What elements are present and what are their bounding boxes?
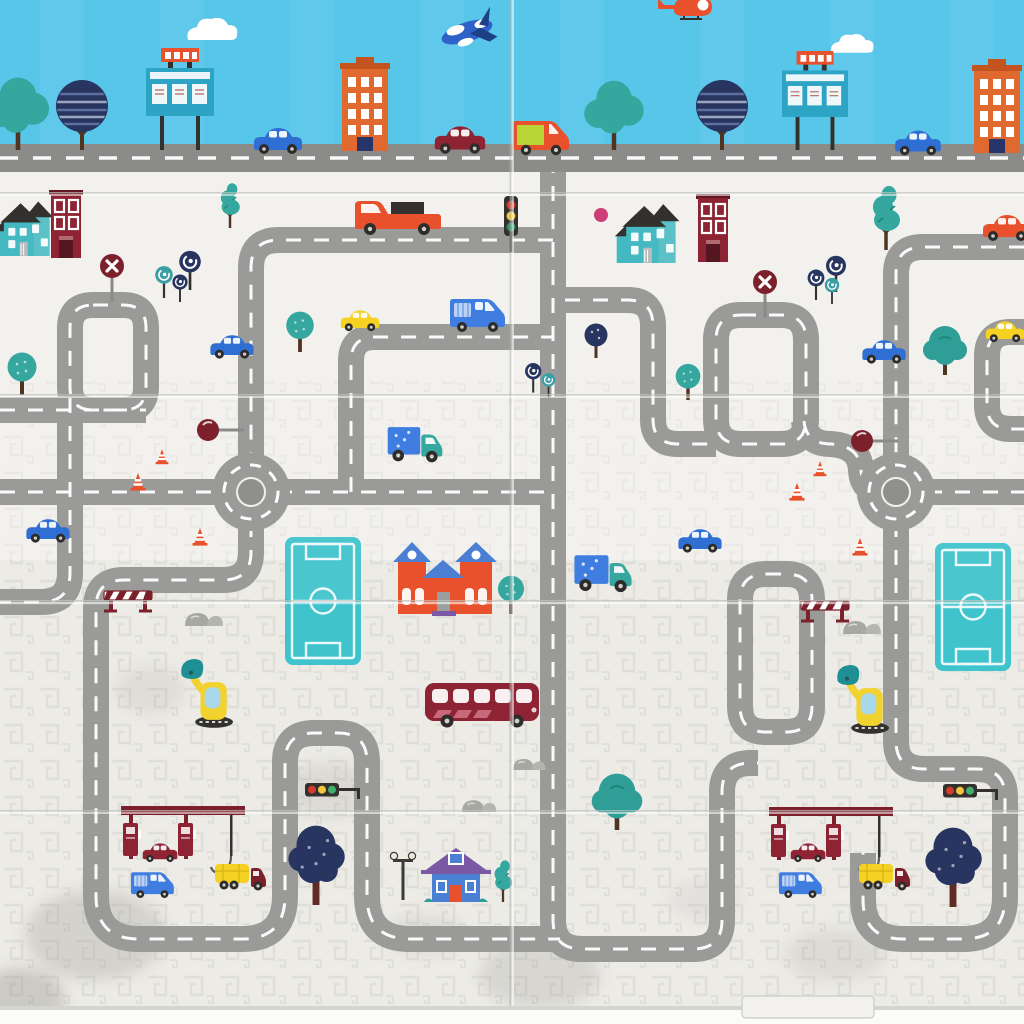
maroon-rowhouse (696, 194, 730, 262)
roundabout-left (224, 465, 278, 519)
play-mat-photo: Foldable baby play mat - cartoon town ro… (0, 0, 1024, 1024)
roundabout-right (869, 465, 923, 519)
edge-tab (742, 996, 874, 1018)
orange-tower (972, 59, 1022, 153)
maroon-rowhouse (49, 190, 83, 258)
pink-balloon-dot (594, 208, 608, 222)
soccer-field (935, 543, 1011, 671)
orange-tower (340, 57, 390, 151)
red-bus (425, 683, 539, 728)
play-mat-illustration (0, 0, 1024, 1024)
